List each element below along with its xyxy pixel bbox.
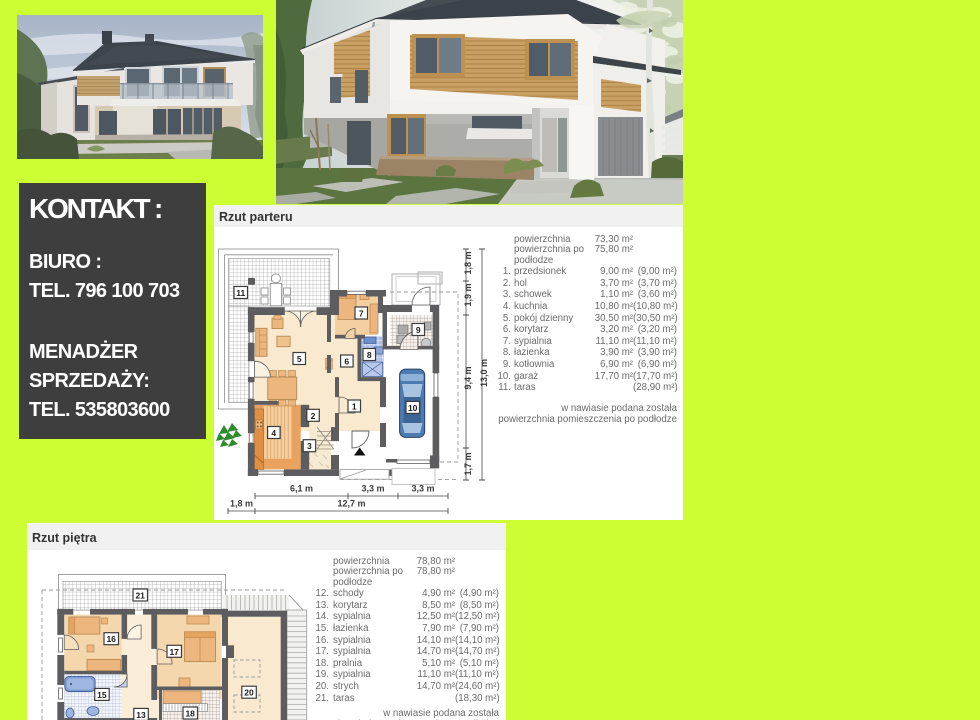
svg-text:1: 1 [352,402,357,412]
svg-text:1,7 m: 1,7 m [463,452,473,475]
svg-text:16: 16 [106,634,116,644]
svg-text:20: 20 [244,688,254,698]
svg-text:5: 5 [297,354,302,364]
svg-text:15: 15 [97,690,107,700]
svg-text:12,7 m: 12,7 m [337,499,365,509]
svg-text:17: 17 [169,647,179,657]
svg-text:8: 8 [367,350,372,360]
svg-text:1,8 m: 1,8 m [463,251,473,274]
svg-text:6: 6 [344,357,349,367]
svg-text:7: 7 [359,309,364,319]
svg-text:6,1 m: 6,1 m [290,484,313,494]
svg-text:9: 9 [416,325,421,335]
svg-text:3,3 m: 3,3 m [411,484,434,494]
svg-text:13,0 m: 13,0 m [479,359,489,387]
svg-text:2: 2 [311,411,316,421]
svg-text:10: 10 [408,403,418,413]
svg-text:18: 18 [185,709,195,719]
svg-text:3,3 m: 3,3 m [361,484,384,494]
svg-text:21: 21 [135,591,145,601]
svg-text:1,8 m: 1,8 m [230,499,253,509]
svg-text:9,4 m: 9,4 m [463,366,473,389]
svg-text:13: 13 [136,710,146,720]
svg-text:4: 4 [271,428,276,438]
svg-text:3: 3 [307,441,312,451]
svg-text:1,9 m: 1,9 m [463,283,473,306]
svg-text:11: 11 [236,288,245,298]
